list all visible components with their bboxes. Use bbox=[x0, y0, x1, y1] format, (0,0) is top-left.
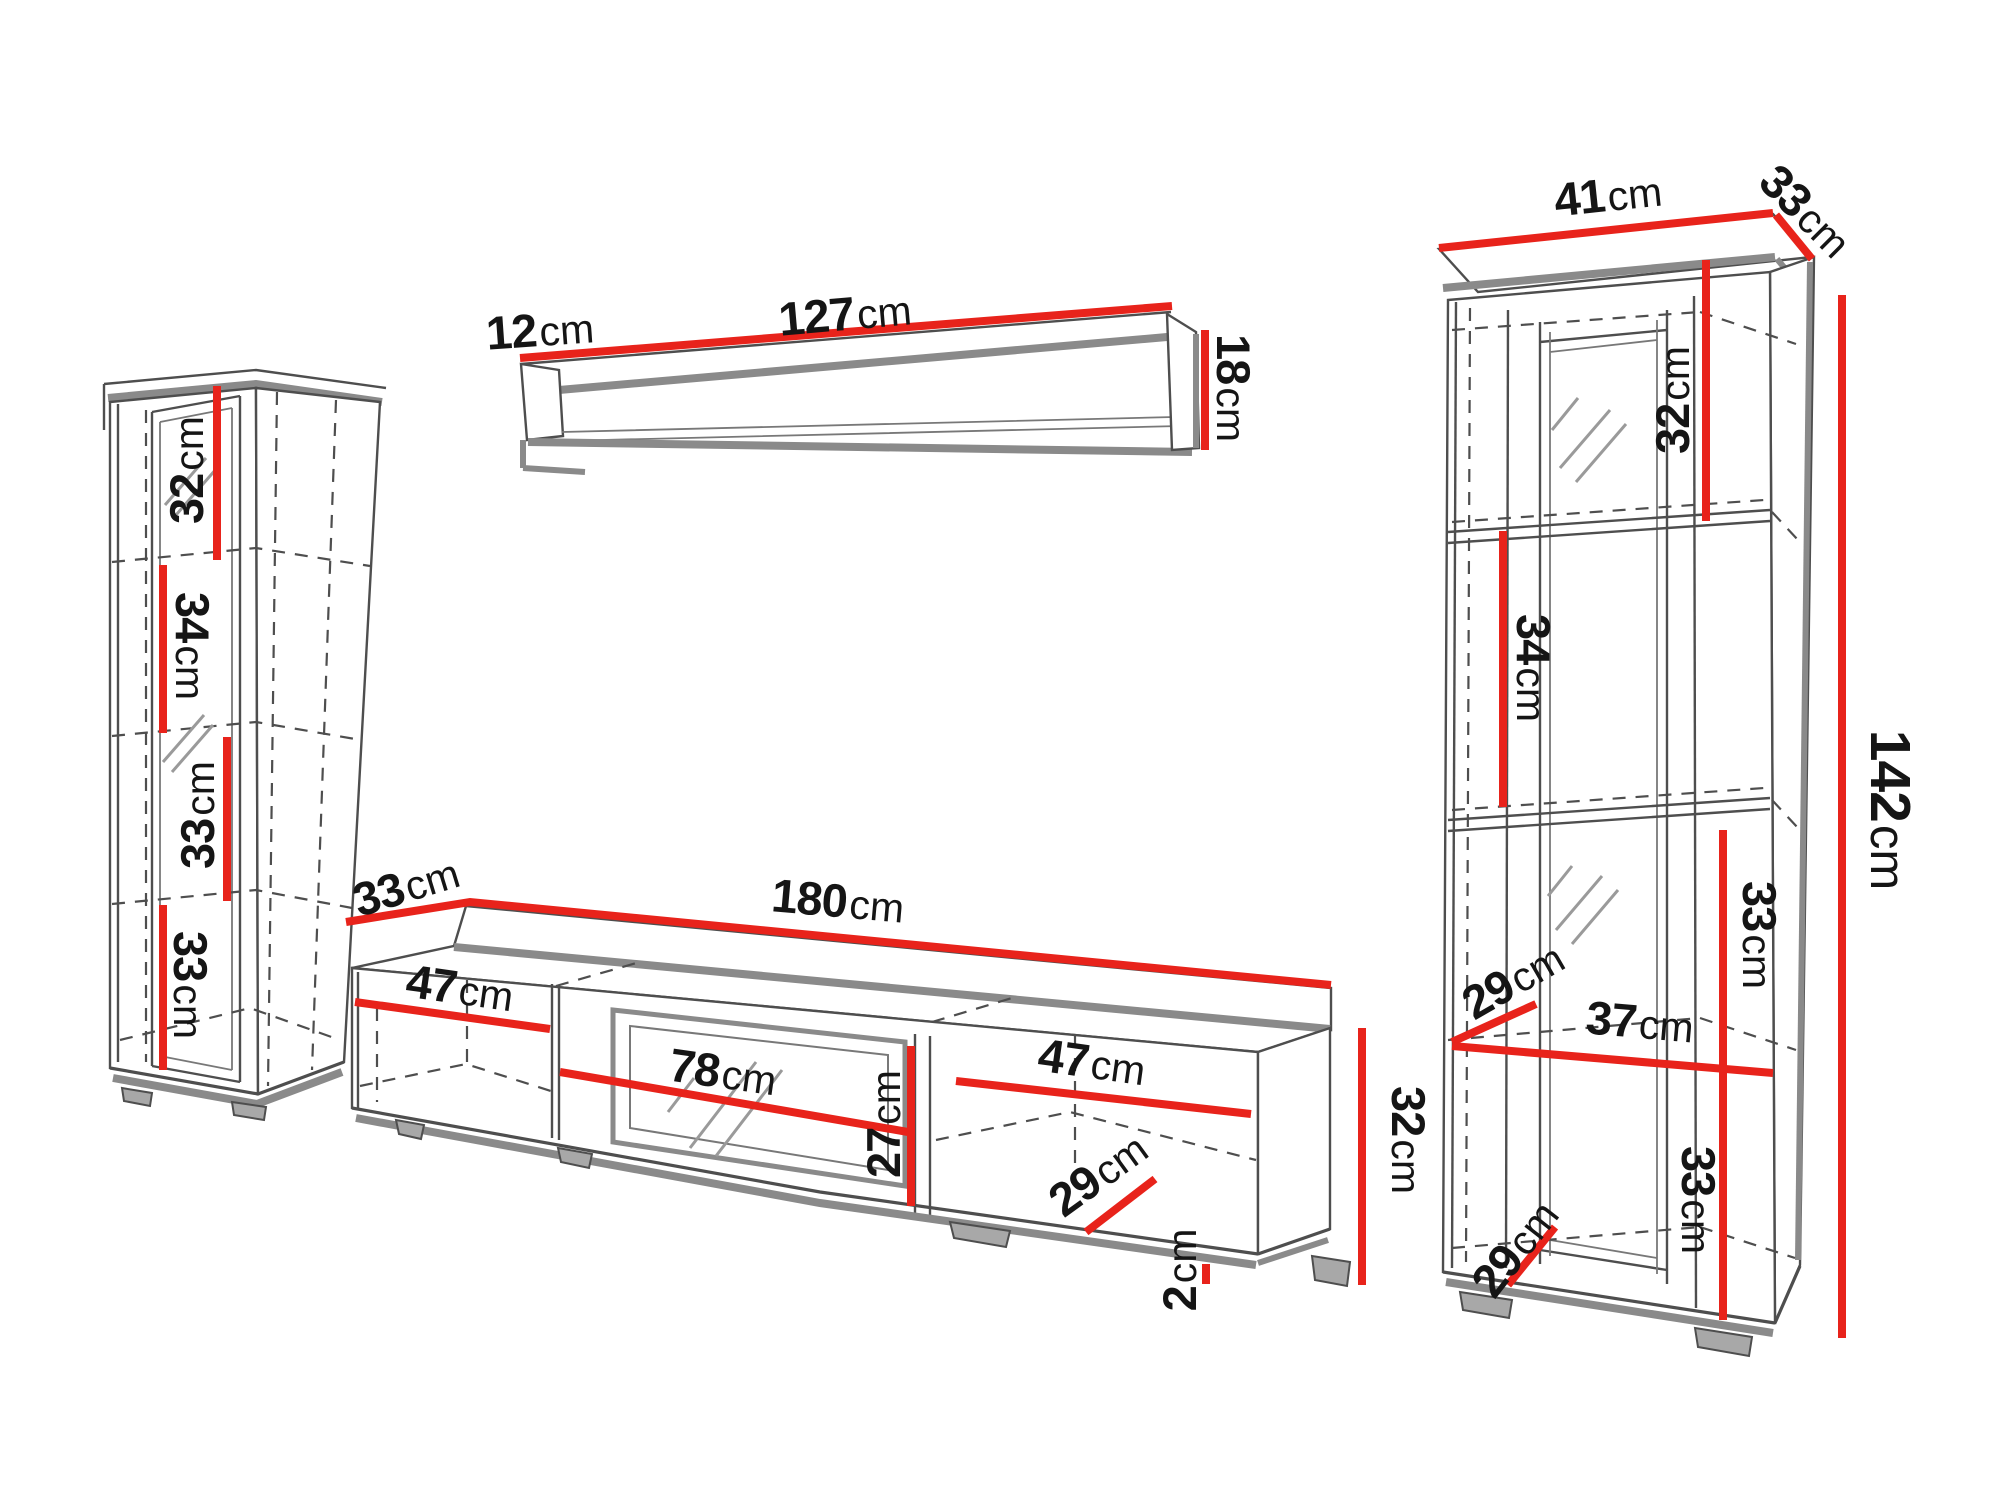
dim-label-stand-middle-height: 27cm bbox=[857, 1070, 910, 1178]
diagram-canvas: 32cm 34cm 33cm 33cm 12cm 127cm 18cm bbox=[0, 0, 1998, 1499]
dim-label-stand-width: 180cm bbox=[769, 868, 906, 932]
stand-foot bbox=[396, 1120, 424, 1139]
dim-label-shelf-depth: 12cm bbox=[484, 299, 595, 359]
dim-label-stand-plinth-height: 2cm bbox=[1153, 1229, 1206, 1312]
dim-label-left-section1: 32cm bbox=[160, 416, 213, 524]
dim-label-right-height: 142cm bbox=[1858, 730, 1922, 890]
cabinet-foot bbox=[122, 1088, 152, 1106]
dim-label-right-section2: 34cm bbox=[1507, 614, 1560, 722]
tv-stand: 33cm 180cm 47cm 78cm 27cm 47cm 29cm 2cm … bbox=[346, 844, 1435, 1311]
furniture-dimension-diagram: 32cm 34cm 33cm 33cm 12cm 127cm 18cm bbox=[0, 0, 1998, 1499]
shelf-left-cap bbox=[521, 364, 563, 440]
dim-label-right-section4: 33cm bbox=[1672, 1146, 1725, 1254]
left-display-cabinet: 32cm 34cm 33cm 33cm bbox=[104, 370, 386, 1120]
dim-label-left-section3: 33cm bbox=[171, 761, 224, 869]
dim-label-left-section2: 34cm bbox=[166, 592, 219, 700]
dim-label-left-section4: 33cm bbox=[164, 931, 217, 1039]
dim-label-stand-height: 32cm bbox=[1382, 1086, 1435, 1194]
dim-label-right-section3: 33cm bbox=[1733, 881, 1786, 989]
right-display-cabinet: 41cm 33cm 32cm 34cm 142cm 33cm 29cm 37cm… bbox=[1439, 154, 1922, 1356]
dim-label-shelf-width: 127cm bbox=[776, 281, 913, 345]
dim-label-right-width: 41cm bbox=[1552, 163, 1665, 227]
dim-label-right-section1: 32cm bbox=[1646, 346, 1699, 454]
shelf-bottom-edge bbox=[528, 442, 1192, 452]
shelf-board-lines bbox=[562, 417, 1180, 441]
stand-right-end-face bbox=[1258, 1028, 1330, 1254]
wall-shelf: 12cm 127cm 18cm bbox=[484, 281, 1260, 472]
stand-foot bbox=[1312, 1256, 1350, 1286]
dim-label-shelf-height: 18cm bbox=[1207, 334, 1260, 442]
